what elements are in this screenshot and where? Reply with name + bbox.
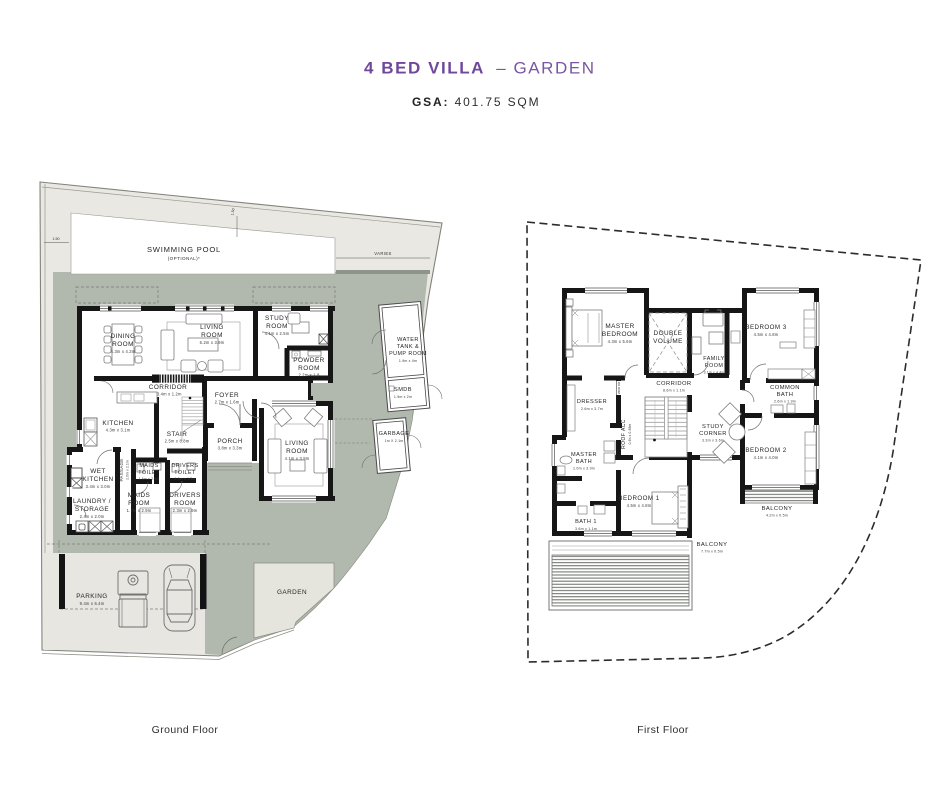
svg-text:STAIR: STAIR [167, 431, 188, 438]
svg-text:GARDEN: GARDEN [277, 589, 307, 596]
svg-text:STORAGE: STORAGE [75, 506, 109, 513]
svg-text:4.2m x 0.5m: 4.2m x 0.5m [766, 514, 788, 518]
svg-text:8.6m x 1.1m: 8.6m x 1.1m [663, 389, 685, 393]
svg-text:3.8m x 3.3m: 3.8m x 3.3m [218, 446, 243, 451]
svg-text:2.5m x 8.8m: 2.5m x 8.8m [165, 439, 190, 444]
svg-text:TANK &: TANK & [397, 344, 420, 350]
svg-text:4.5m x 4.8m: 4.5m x 4.8m [627, 503, 652, 508]
svg-text:PORCH: PORCH [217, 438, 242, 445]
svg-text:ROOM: ROOM [266, 323, 288, 330]
svg-text:VARIES: VARIES [374, 251, 391, 256]
svg-text:7.7m x 0.5m: 7.7m x 0.5m [701, 550, 723, 554]
svg-text:CORRIDOR: CORRIDOR [149, 384, 187, 391]
svg-text:ROOM: ROOM [298, 365, 320, 372]
svg-text:3.6m x 1.1m: 3.6m x 1.1m [575, 527, 597, 531]
svg-text:DRIVERS: DRIVERS [169, 492, 201, 499]
svg-text:4.1m x 3.9m: 4.1m x 3.9m [285, 456, 310, 461]
svg-text:PUMP ROOM: PUMP ROOM [389, 351, 427, 357]
svg-text:ROOM: ROOM [174, 500, 196, 507]
svg-text:FOYER: FOYER [215, 392, 239, 399]
svg-text:4.1m x 4.0m: 4.1m x 4.0m [754, 455, 779, 460]
svg-text:BEDROOM 1: BEDROOM 1 [618, 495, 659, 502]
svg-text:MAIDS: MAIDS [128, 492, 151, 499]
svg-text:4 BED VILLA – GARDEN: 4 BED VILLA – GARDEN [364, 59, 596, 78]
svg-text:13.4m x 1.2m: 13.4m x 1.2m [154, 392, 182, 397]
svg-text:Ground Floor: Ground Floor [152, 724, 219, 736]
svg-text:1.7m x 2.9m: 1.7m x 2.9m [127, 508, 152, 513]
svg-text:VOLUME: VOLUME [653, 338, 683, 345]
svg-text:TOILET: TOILET [138, 470, 160, 476]
svg-text:BATH: BATH [576, 459, 592, 465]
svg-text:POWDER: POWDER [293, 357, 324, 364]
svg-text:BATH: BATH [777, 392, 794, 398]
svg-text:ROOM: ROOM [128, 500, 150, 507]
svg-text:ROOM: ROOM [201, 332, 223, 339]
svg-text:FAMILY: FAMILY [703, 356, 724, 362]
svg-text:SMDB: SMDB [394, 387, 412, 393]
svg-text:LIVING: LIVING [285, 440, 309, 447]
svg-text:2.7m x 1.6m: 2.7m x 1.6m [215, 400, 240, 405]
svg-text:MASTER: MASTER [605, 323, 634, 330]
svg-text:DRIVERS: DRIVERS [171, 463, 198, 469]
svg-text:1.9m x 4m: 1.9m x 4m [399, 359, 417, 363]
svg-text:DOUBLE: DOUBLE [654, 330, 683, 337]
svg-text:GSA: 401.75 SQM: GSA: 401.75 SQM [412, 95, 540, 109]
svg-text:WET: WET [90, 468, 106, 475]
svg-text:COMMON: COMMON [770, 385, 800, 391]
svg-text:2.4m x 2.0m: 2.4m x 2.0m [80, 514, 105, 519]
svg-text:First Floor: First Floor [637, 724, 689, 736]
svg-text:BEDROOM 2: BEDROOM 2 [745, 447, 786, 454]
svg-text:MASTER: MASTER [571, 452, 597, 458]
svg-text:DRESSER: DRESSER [577, 399, 607, 405]
svg-text:GARBAGE: GARBAGE [379, 431, 410, 437]
svg-text:LIVING: LIVING [200, 324, 224, 331]
svg-text:2.6m x 3.7m: 2.6m x 3.7m [581, 407, 603, 411]
svg-text:3.3m x 3.6m: 3.3m x 3.6m [702, 439, 724, 443]
svg-text:BEDROOM: BEDROOM [602, 331, 638, 338]
svg-text:4.5m x 4.8m: 4.5m x 4.8m [754, 332, 779, 337]
svg-text:CORRIDOR: CORRIDOR [656, 381, 691, 387]
svg-text:WATER: WATER [397, 337, 419, 343]
svg-text:2.6m x 1.9m: 2.6m x 1.9m [774, 400, 796, 404]
svg-text:MAIDS: MAIDS [139, 463, 158, 469]
svg-text:BALCONY: BALCONY [762, 506, 793, 512]
svg-text:1.5m x 1.5m: 1.5m x 1.5m [175, 477, 196, 481]
svg-text:ROOM: ROOM [112, 341, 134, 348]
svg-text:4.3m x 3.1m: 4.3m x 3.1m [106, 428, 131, 433]
svg-text:BEDROOM 3: BEDROOM 3 [745, 324, 786, 331]
svg-text:PASSAGE: PASSAGE [119, 458, 124, 481]
svg-text:LAUNDRY /: LAUNDRY / [73, 498, 111, 505]
svg-text:(OPTIONAL)*: (OPTIONAL)* [168, 256, 200, 261]
svg-text:SWIMMING POOL: SWIMMING POOL [147, 245, 221, 254]
svg-text:STUDY: STUDY [702, 424, 724, 430]
svg-text:ROOF ACC: ROOF ACC [621, 419, 627, 449]
svg-text:9.4m x 6.4m: 9.4m x 6.4m [80, 601, 105, 606]
svg-text:2.3m x 2.9m: 2.3m x 2.9m [173, 508, 198, 513]
svg-text:WDR DR: WDR DR [617, 381, 621, 394]
svg-text:KITCHEN: KITCHEN [102, 420, 133, 427]
svg-text:3.1m x 4.4m: 3.1m x 4.4m [704, 371, 725, 375]
svg-text:BALCONY: BALCONY [697, 542, 728, 548]
svg-text:1.6m x 2.0m: 1.6m x 2.0m [139, 477, 160, 481]
svg-text:KITCHEN: KITCHEN [82, 476, 113, 483]
svg-text:BATH 1: BATH 1 [575, 519, 597, 525]
svg-text:0.6h x 0.88m: 0.6h x 0.88m [628, 423, 632, 444]
svg-text:2.2m x 1.8: 2.2m x 1.8 [298, 373, 320, 378]
svg-text:1.9m x 2m: 1.9m x 2m [394, 395, 412, 399]
svg-text:CORNER: CORNER [699, 431, 727, 437]
svg-text:4.3m x 5.6m: 4.3m x 5.6m [608, 339, 633, 344]
svg-text:4.3m x 4.3m: 4.3m x 4.3m [111, 349, 136, 354]
svg-text:3.4m x 3.0m: 3.4m x 3.0m [86, 484, 111, 489]
svg-text:STUDY: STUDY [265, 315, 289, 322]
svg-text:1.0m x 2.1m: 1.0m x 2.1m [126, 460, 130, 480]
svg-text:1.50: 1.50 [53, 237, 60, 241]
svg-text:PARKING: PARKING [76, 593, 107, 600]
svg-text:1m X 2.1m: 1m X 2.1m [385, 439, 404, 443]
svg-text:DINING: DINING [110, 333, 135, 340]
svg-text:TOILET: TOILET [174, 470, 196, 476]
svg-text:1.0m x 3.9m: 1.0m x 3.9m [573, 467, 595, 471]
svg-text:ROOM: ROOM [286, 448, 308, 455]
svg-text:6.2m x 3.9m: 6.2m x 3.9m [200, 340, 225, 345]
